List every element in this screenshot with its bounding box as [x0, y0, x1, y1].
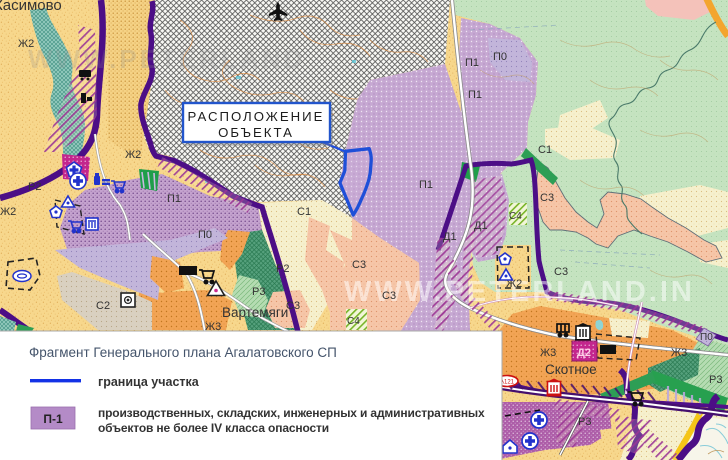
svg-text:П1: П1: [465, 57, 479, 69]
svg-text:ОБЪЕКТА: ОБЪЕКТА: [218, 125, 294, 140]
svg-text:С3: С3: [540, 192, 554, 204]
svg-text:С3: С3: [382, 290, 396, 302]
svg-text:П0: П0: [700, 332, 713, 343]
svg-text:объектов не более IV класса оп: объектов не более IV класса опасности: [98, 421, 329, 435]
svg-text:производственных, складских, и: производственных, складских, инженерных …: [98, 406, 485, 420]
svg-text:Ж3: Ж3: [671, 347, 687, 359]
svg-text:С2: С2: [96, 300, 110, 312]
svg-text:WWW.PETERLAND: WWW.PETERLAND: [28, 44, 305, 74]
svg-text:Р2: Р2: [28, 181, 41, 193]
svg-text:Р3: Р3: [578, 416, 591, 428]
svg-text:Ж2: Ж2: [0, 206, 16, 218]
svg-text:Ж2: Ж2: [125, 149, 141, 161]
svg-text:граница участка: граница участка: [98, 375, 200, 389]
svg-text:С4: С4: [347, 316, 360, 327]
svg-text:Р3: Р3: [709, 374, 722, 386]
svg-text:С4: С4: [509, 211, 522, 222]
svg-text:Д1: Д1: [474, 220, 488, 232]
svg-text:П1: П1: [167, 193, 181, 205]
svg-text:П1: П1: [419, 179, 433, 191]
svg-text:П0: П0: [198, 229, 212, 241]
svg-text:Р2: Р2: [276, 263, 289, 275]
svg-text:С3: С3: [352, 259, 366, 271]
svg-text:С1: С1: [297, 206, 311, 218]
svg-text:П1: П1: [468, 89, 482, 101]
svg-text:С1: С1: [538, 144, 552, 156]
svg-text:Вартемяги: Вартемяги: [222, 305, 288, 320]
svg-text:РАСПОЛОЖЕНИЕ: РАСПОЛОЖЕНИЕ: [188, 109, 325, 124]
svg-text:Р3: Р3: [252, 286, 265, 298]
svg-text:П0: П0: [493, 51, 507, 63]
svg-text:Ж2: Ж2: [18, 38, 34, 50]
svg-text:Скотное: Скотное: [545, 362, 597, 377]
svg-text:Ж3: Ж3: [540, 347, 556, 359]
svg-text:С3: С3: [554, 266, 568, 278]
svg-text:Д2: Д2: [577, 347, 591, 359]
svg-text:Касимово: Касимово: [0, 0, 62, 14]
svg-text:Д1: Д1: [443, 231, 457, 243]
svg-text:П-1: П-1: [43, 412, 63, 426]
svg-text:Фрагмент Генерального плана Аг: Фрагмент Генерального плана Агалатовског…: [29, 345, 337, 360]
